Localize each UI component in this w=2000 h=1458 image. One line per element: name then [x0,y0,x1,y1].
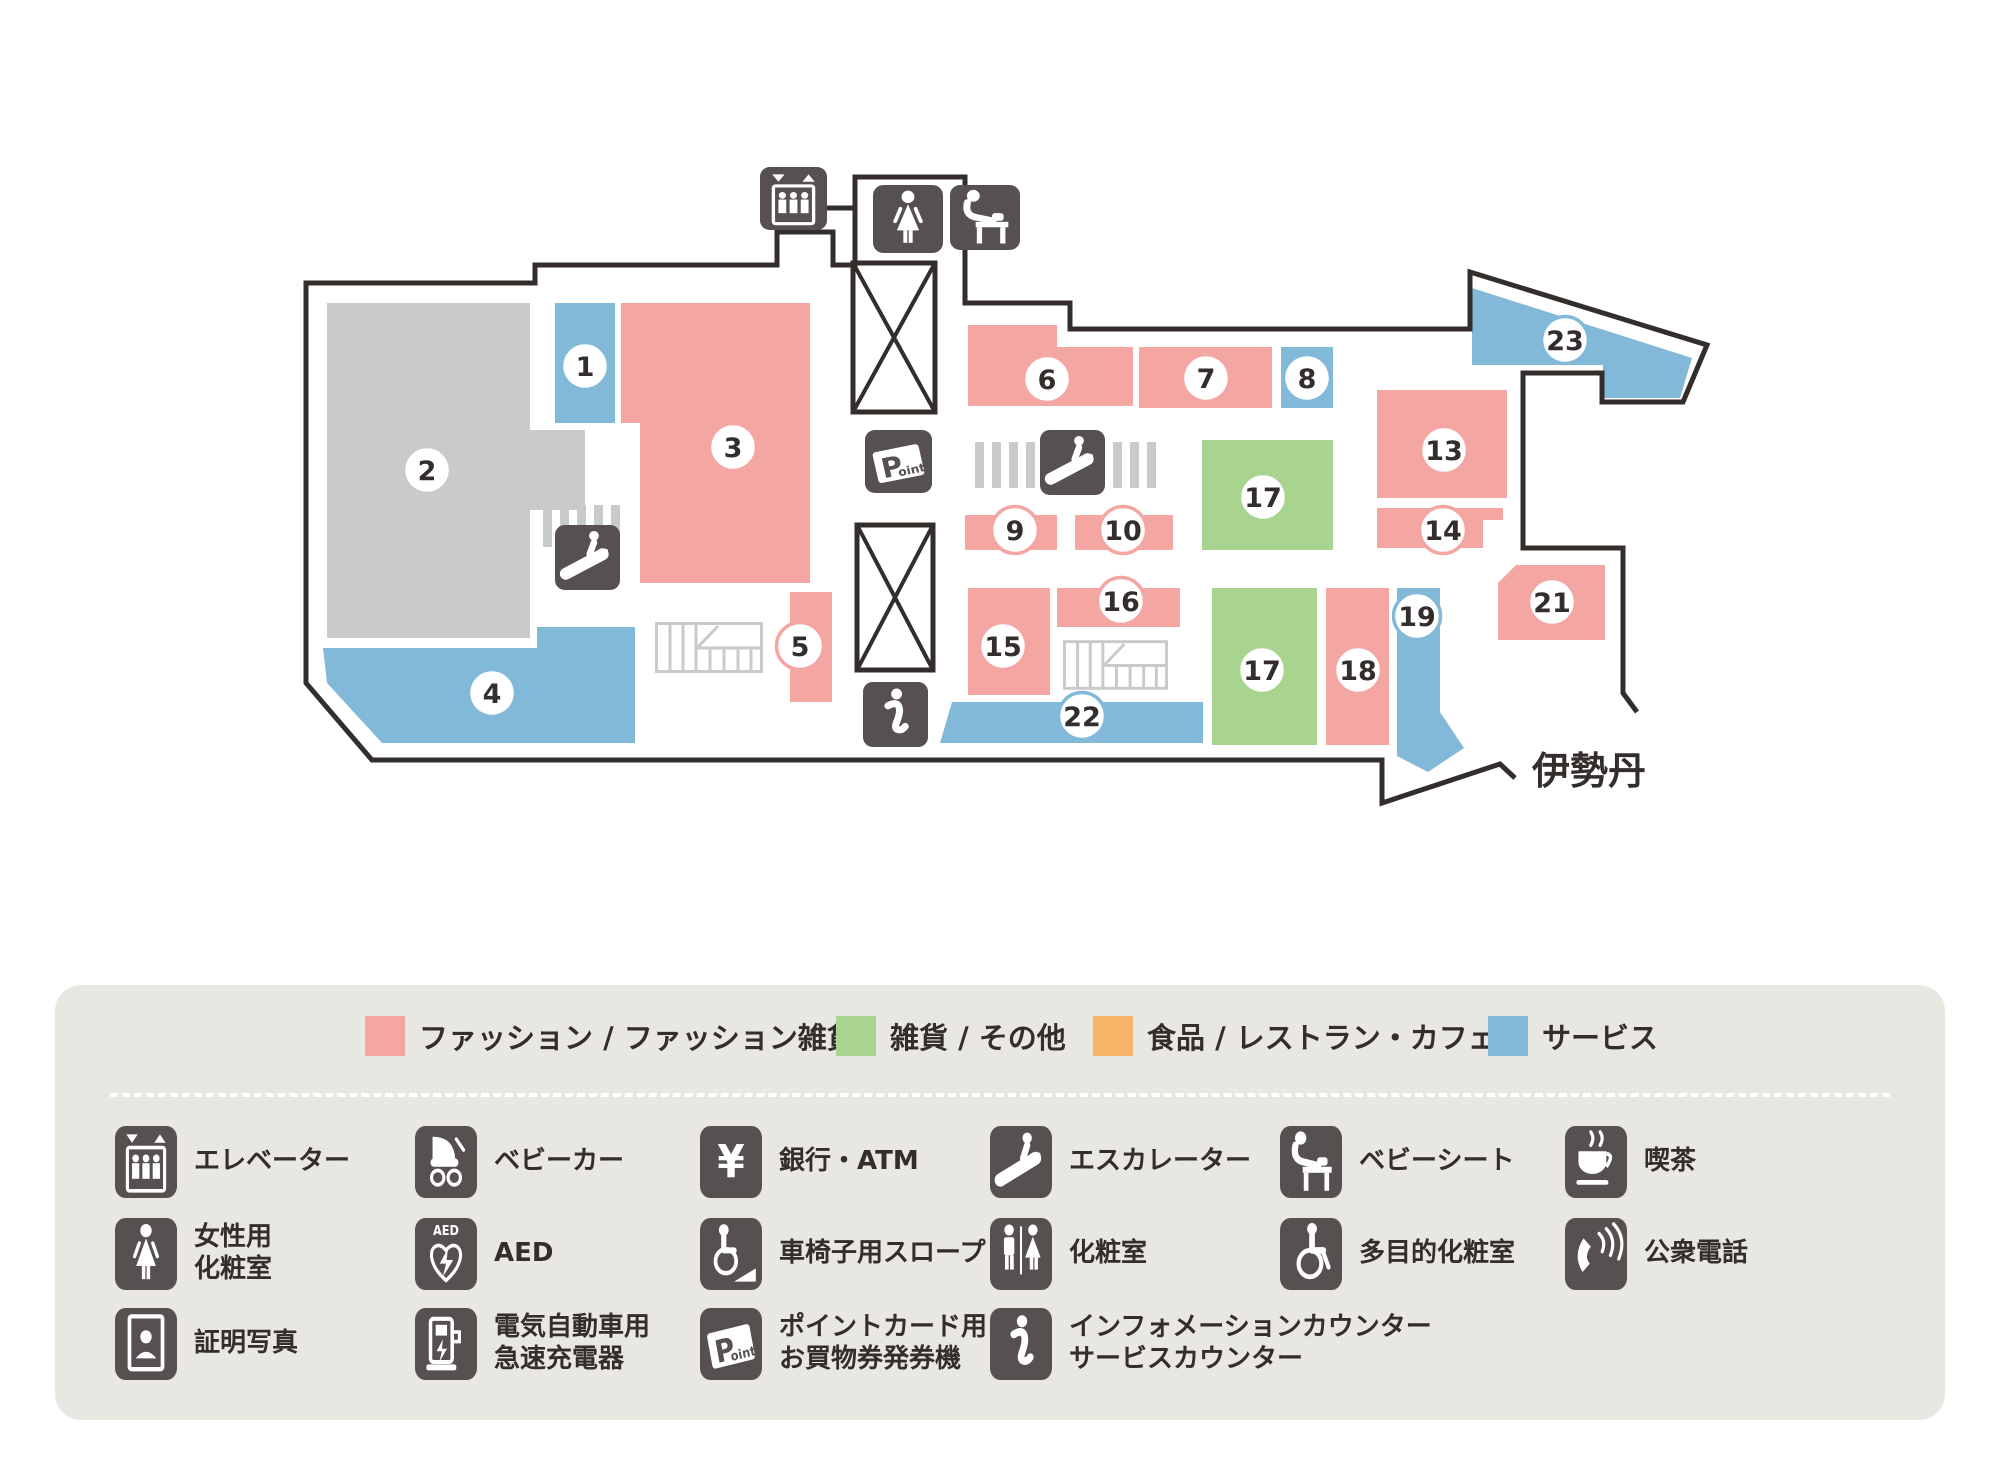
point-icon [700,1308,762,1380]
stroller-icon [415,1126,477,1198]
facility-item-info: インフォメーションカウンター サービスカウンター [990,1305,1432,1383]
escalator-icon [555,525,620,590]
info-icon [990,1308,1052,1380]
category-label: ファッション / ファッション雑貨 [419,1015,856,1057]
room-number-3: 3 [724,433,743,464]
floor-map: ¥ AED [0,0,2000,965]
room-number-17: 17 [1244,483,1282,514]
room-number-6: 6 [1038,365,1057,396]
room-number-18: 18 [1339,656,1377,687]
room-number-19: 19 [1398,602,1436,633]
facility-item-yen: 銀行・ATM [700,1123,919,1201]
room-number-4: 4 [483,679,502,710]
facility-label: インフォメーションカウンター サービスカウンター [1069,1312,1432,1375]
isetan-label: 伊勢丹 [1531,749,1646,793]
room-number-10: 10 [1104,516,1142,547]
category-item-2: 食品 / レストラン・カフェ [1093,1015,1497,1057]
facility-item-ramp: 車椅子用スロープ [700,1215,985,1293]
facility-label: ベビーカー [494,1146,624,1178]
room-number-5: 5 [791,632,810,663]
facility-label: エレベーター [194,1146,350,1178]
category-swatch [1093,1016,1133,1056]
point-icon [865,430,932,493]
room-number-14: 14 [1424,516,1462,547]
facility-label: ポイントカード用 お買物券発券機 [779,1312,987,1375]
ramp-icon [700,1218,762,1290]
facility-item-accessible: 多目的化粧室 [1280,1215,1515,1293]
facility-item-aed: AED [415,1215,553,1293]
facility-item-phone: 公衆電話 [1565,1215,1748,1293]
babyseat-icon [1280,1126,1342,1198]
facility-label: 化粧室 [1069,1238,1147,1270]
category-label: サービス [1542,1015,1658,1057]
facility-label: 銀行・ATM [779,1146,919,1178]
elevator-icon [115,1126,177,1198]
elevator-icon [760,167,827,230]
category-item-1: 雑貨 / その他 [836,1015,1066,1057]
facility-item-photo: 証明写真 [115,1305,298,1383]
ev-icon [415,1308,477,1380]
category-swatch [836,1016,876,1056]
room-number-15: 15 [984,632,1022,663]
facility-item-coffee: 喫茶 [1565,1123,1696,1201]
legend-panel: ファッション / ファッション雑貨雑貨 / その他食品 / レストラン・カフェサ… [55,985,1945,1420]
room-number-1: 1 [576,352,595,383]
facility-item-stroller: ベビーカー [415,1123,624,1201]
yen-icon [700,1126,762,1198]
elevator-shaft-bottom [857,525,933,670]
facility-label: 多目的化粧室 [1359,1238,1515,1270]
facility-item-ev: 電気自動車用 急速充電器 [415,1305,650,1383]
room-number-21: 21 [1533,588,1571,619]
facility-label: 証明写真 [194,1328,298,1360]
woman-icon [115,1218,177,1290]
facility-label: 喫茶 [1644,1146,1696,1178]
woman-icon [873,185,943,253]
room-number-17: 17 [1243,656,1281,687]
category-item-0: ファッション / ファッション雑貨 [365,1015,856,1057]
category-label: 食品 / レストラン・カフェ [1147,1015,1497,1057]
category-swatch [1488,1016,1528,1056]
facility-label: AED [494,1238,553,1270]
facility-label: ベビーシート [1359,1146,1514,1178]
coffee-icon [1565,1126,1627,1198]
legend-divider [110,1093,1890,1097]
babyseat-icon [950,185,1020,250]
facility-label: エスカレーター [1069,1146,1251,1178]
room-number-8: 8 [1298,364,1317,395]
floor-map-page: ¥ AED [0,0,2000,1458]
category-label: 雑貨 / その他 [890,1015,1066,1057]
restroom-icon [990,1218,1052,1290]
facility-label: 女性用 化粧室 [194,1222,272,1285]
facility-item-point: ポイントカード用 お買物券発券機 [700,1305,987,1383]
aed-icon [415,1218,477,1290]
facility-item-elevator: エレベーター [115,1123,350,1201]
facility-label: 電気自動車用 急速充電器 [494,1312,650,1375]
escalator-icon [1040,430,1105,495]
category-item-3: サービス [1488,1015,1658,1057]
stairs-icon-left [657,624,762,673]
room-2 [327,303,585,638]
escalator-icon [990,1126,1052,1198]
room-number-2: 2 [418,456,437,487]
facility-item-restroom: 化粧室 [990,1215,1147,1293]
facility-item-babyseat: ベビーシート [1280,1123,1514,1201]
photo-icon [115,1308,177,1380]
elevator-shaft-top [853,263,935,412]
info-icon [863,682,928,747]
facility-item-escalator: エスカレーター [990,1123,1251,1201]
category-swatch [365,1016,405,1056]
room-number-16: 16 [1102,587,1140,618]
facility-item-woman: 女性用 化粧室 [115,1215,272,1293]
room-number-9: 9 [1006,516,1025,547]
phone-icon [1565,1218,1627,1290]
room-number-23: 23 [1546,326,1584,357]
room-number-22: 22 [1063,702,1101,733]
facility-label: 車椅子用スロープ [779,1238,985,1270]
accessible-icon [1280,1218,1342,1290]
room-number-13: 13 [1425,436,1463,467]
room-number-7: 7 [1197,364,1216,395]
stairs-icon-right [1064,642,1166,689]
facility-label: 公衆電話 [1644,1238,1748,1270]
